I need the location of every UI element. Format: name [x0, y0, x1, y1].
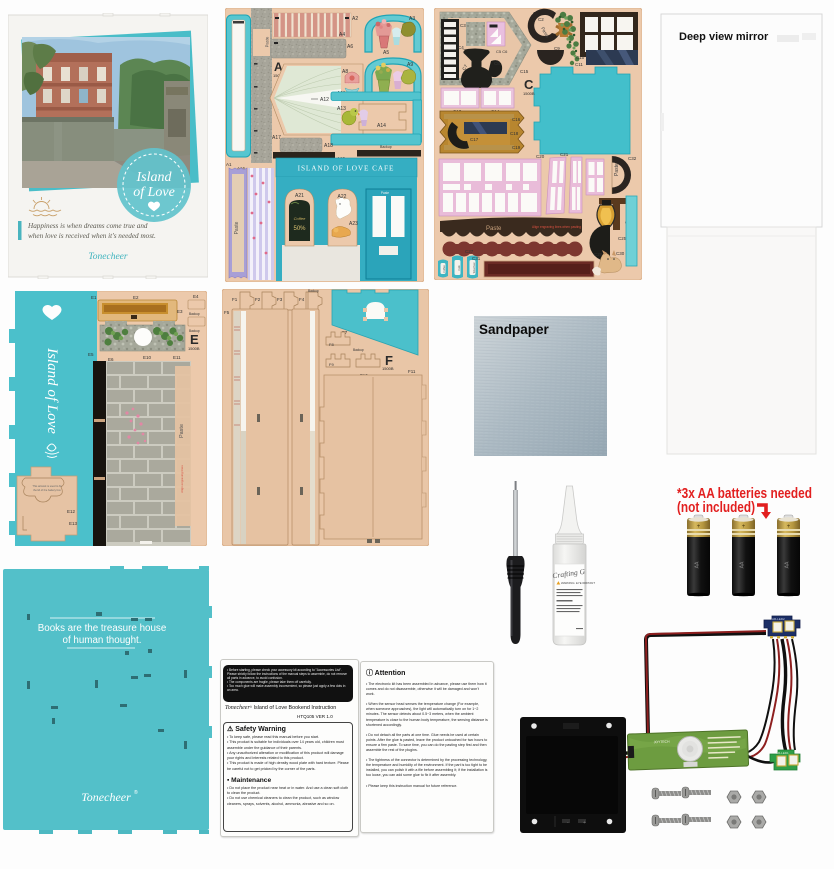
svg-text:E12: E12 [67, 509, 76, 514]
svg-text:C25: C25 [618, 236, 627, 241]
svg-text:Backup: Backup [380, 145, 392, 149]
svg-text:C11: C11 [575, 62, 583, 67]
svg-text:E13: E13 [69, 521, 78, 526]
svg-text:Sandpaper: Sandpaper [479, 322, 550, 337]
svg-text:C21: C21 [560, 152, 569, 157]
svg-text:C9: C9 [554, 46, 560, 51]
svg-text:Coffee: Coffee [294, 216, 307, 221]
svg-text:(not included): (not included) [677, 500, 755, 516]
svg-text:C8: C8 [494, 61, 500, 66]
svg-text:C28: C28 [594, 252, 603, 257]
svg-text:F9: F9 [329, 362, 334, 367]
svg-text:F5: F5 [224, 310, 230, 315]
svg-text:WARNING: EYE IRRITANT: WARNING: EYE IRRITANT [561, 581, 595, 585]
svg-text:1500B: 1500B [382, 366, 394, 371]
svg-text:C20: C20 [536, 154, 545, 159]
svg-text:C5 C6: C5 C6 [496, 49, 508, 54]
svg-text:A17: A17 [272, 135, 281, 141]
svg-text:E5: E5 [88, 352, 94, 357]
svg-text:F11: F11 [408, 369, 416, 374]
svg-text:+: + [583, 820, 586, 826]
svg-text:Cafe: Cafe [457, 265, 461, 271]
svg-text:ISLAND OF LOVE CAFE: ISLAND OF LOVE CAFE [298, 164, 395, 173]
svg-text:®: ® [134, 789, 138, 796]
svg-text:E3: E3 [177, 309, 183, 314]
svg-text:F1: F1 [232, 297, 238, 302]
svg-text:This artwork is used to fix: This artwork is used to fix [32, 484, 62, 488]
svg-text:A14: A14 [377, 123, 386, 129]
svg-text:Paste: Paste [381, 191, 389, 195]
svg-text:A6: A6 [347, 44, 353, 50]
svg-text:C4: C4 [458, 45, 464, 50]
svg-text:E2: E2 [133, 295, 139, 300]
svg-text:when love is received when it': when love is received when it's needed m… [28, 232, 156, 240]
svg-text:C30: C30 [616, 251, 625, 256]
svg-text:A9: A9 [407, 62, 413, 68]
svg-text:Tonecheer: Tonecheer [88, 252, 128, 262]
svg-text:C19: C19 [512, 145, 521, 150]
svg-text:C3: C3 [460, 23, 466, 28]
svg-text:A22: A22 [338, 194, 347, 200]
svg-text:A5: A5 [383, 50, 389, 56]
svg-text:Happiness is when dreams come: Happiness is when dreams come true and [27, 222, 148, 230]
svg-text:JOYTECH: JOYTECH [654, 740, 671, 745]
svg-text:E11: E11 [173, 355, 181, 360]
svg-text:AA: AA [740, 561, 746, 568]
svg-text:A3: A3 [409, 16, 415, 22]
svg-text:C32: C32 [628, 156, 637, 161]
svg-text:Paste: Paste [614, 163, 620, 176]
svg-text:Backup: Backup [308, 289, 319, 293]
svg-text:1500B: 1500B [188, 346, 200, 351]
svg-text:C16: C16 [512, 117, 521, 122]
svg-text:A4: A4 [339, 32, 345, 38]
svg-text:A18: A18 [324, 143, 333, 149]
svg-text:Books are the treasure house: Books are the treasure house [38, 623, 167, 634]
svg-text:C10: C10 [576, 55, 585, 60]
svg-text:C27: C27 [465, 249, 474, 254]
svg-text:Tonecheer: Tonecheer [473, 262, 476, 273]
svg-text:A1: A1 [226, 162, 232, 167]
svg-text:F2: F2 [255, 297, 261, 302]
svg-text:Coffee: Coffee [442, 265, 446, 273]
svg-text:C15: C15 [520, 69, 529, 74]
svg-text:F4: F4 [299, 297, 305, 302]
svg-text:AR-LED1: AR-LED1 [776, 751, 789, 755]
svg-text:Tonecheer: Tonecheer [81, 790, 131, 804]
svg-text:AR-LED2: AR-LED2 [772, 617, 785, 621]
svg-text:Island: Island [136, 170, 173, 185]
svg-text:the lid of the battery box: the lid of the battery box [33, 488, 61, 492]
svg-text:Backup: Backup [189, 312, 200, 316]
svg-text:of Love: of Love [133, 185, 175, 200]
svg-text:F8: F8 [329, 342, 334, 347]
svg-text:F3: F3 [277, 297, 283, 302]
svg-text:A21: A21 [295, 193, 304, 199]
svg-text:C2: C2 [538, 17, 544, 22]
svg-text:50%: 50% [293, 226, 306, 232]
svg-text:Paste: Paste [179, 424, 185, 438]
svg-text:1500B: 1500B [523, 91, 535, 96]
svg-text:E1: E1 [91, 295, 97, 300]
svg-text:AA: AA [695, 561, 701, 568]
svg-text:AA: AA [785, 561, 791, 568]
svg-text:E: E [190, 332, 199, 347]
svg-text:A12: A12 [320, 97, 329, 103]
svg-text:A23: A23 [349, 221, 358, 227]
svg-text:Island of Love: Island of Love [44, 347, 60, 434]
svg-text:A2: A2 [352, 16, 358, 22]
svg-text:C31: C31 [472, 256, 481, 261]
svg-text:A13: A13 [337, 106, 346, 112]
svg-text:of human thought.: of human thought. [63, 635, 142, 646]
svg-text:Paste: Paste [265, 36, 270, 47]
svg-text:A8: A8 [342, 69, 348, 75]
svg-text:C18: C18 [510, 131, 519, 136]
svg-text:Align engraving lines: Align engraving lines [180, 465, 184, 493]
svg-text:Deep view mirror: Deep view mirror [679, 31, 769, 43]
svg-text:C17: C17 [470, 137, 479, 142]
svg-text:C: C [524, 77, 534, 92]
svg-text:Backup: Backup [353, 348, 364, 352]
svg-text:E10: E10 [143, 355, 152, 360]
svg-text:Paste: Paste [486, 226, 502, 232]
svg-text:Paste: Paste [234, 221, 240, 234]
svg-text:Align engraving lines when pas: Align engraving lines when pasting [532, 225, 581, 229]
svg-text:E4: E4 [193, 294, 199, 299]
